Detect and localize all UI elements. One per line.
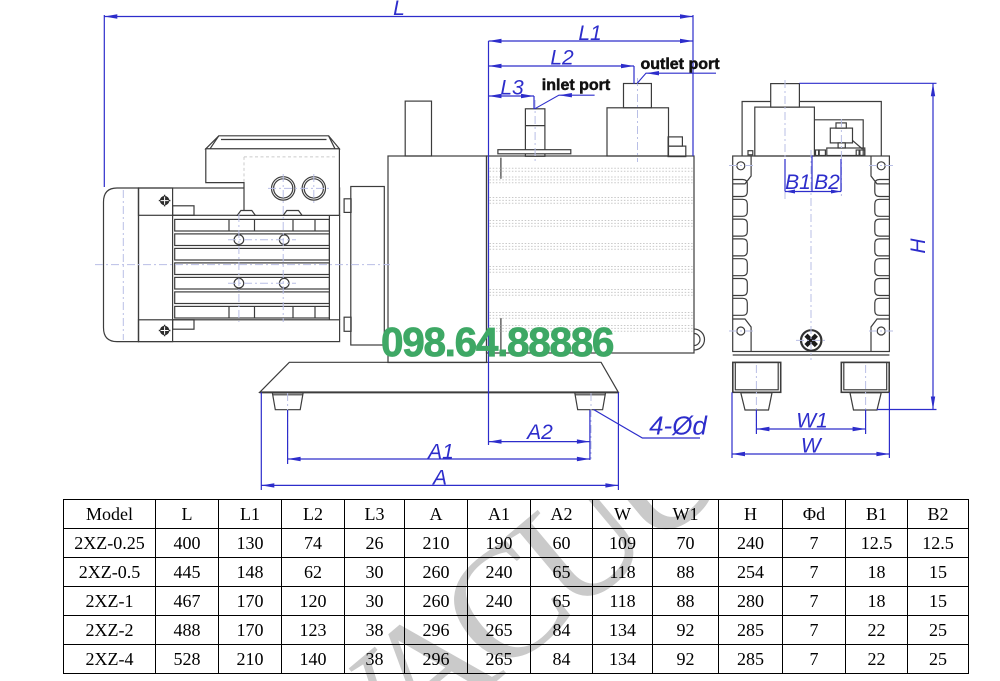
svg-text:outlet port: outlet port xyxy=(640,56,720,73)
svg-text:H: H xyxy=(907,238,930,254)
svg-text:W1: W1 xyxy=(796,410,828,433)
svg-text:A1: A1 xyxy=(426,441,454,464)
svg-text:inlet port: inlet port xyxy=(542,77,611,94)
svg-text:B2: B2 xyxy=(814,171,840,194)
svg-text:A: A xyxy=(431,467,447,490)
svg-text:A2: A2 xyxy=(525,421,553,444)
svg-text:L1: L1 xyxy=(578,22,601,45)
svg-text:L3: L3 xyxy=(500,77,524,100)
svg-text:W: W xyxy=(801,435,823,458)
svg-text:L: L xyxy=(393,0,405,20)
svg-text:4-Ød: 4-Ød xyxy=(649,411,708,441)
svg-text:L2: L2 xyxy=(550,47,574,70)
svg-text:B1: B1 xyxy=(785,171,811,194)
